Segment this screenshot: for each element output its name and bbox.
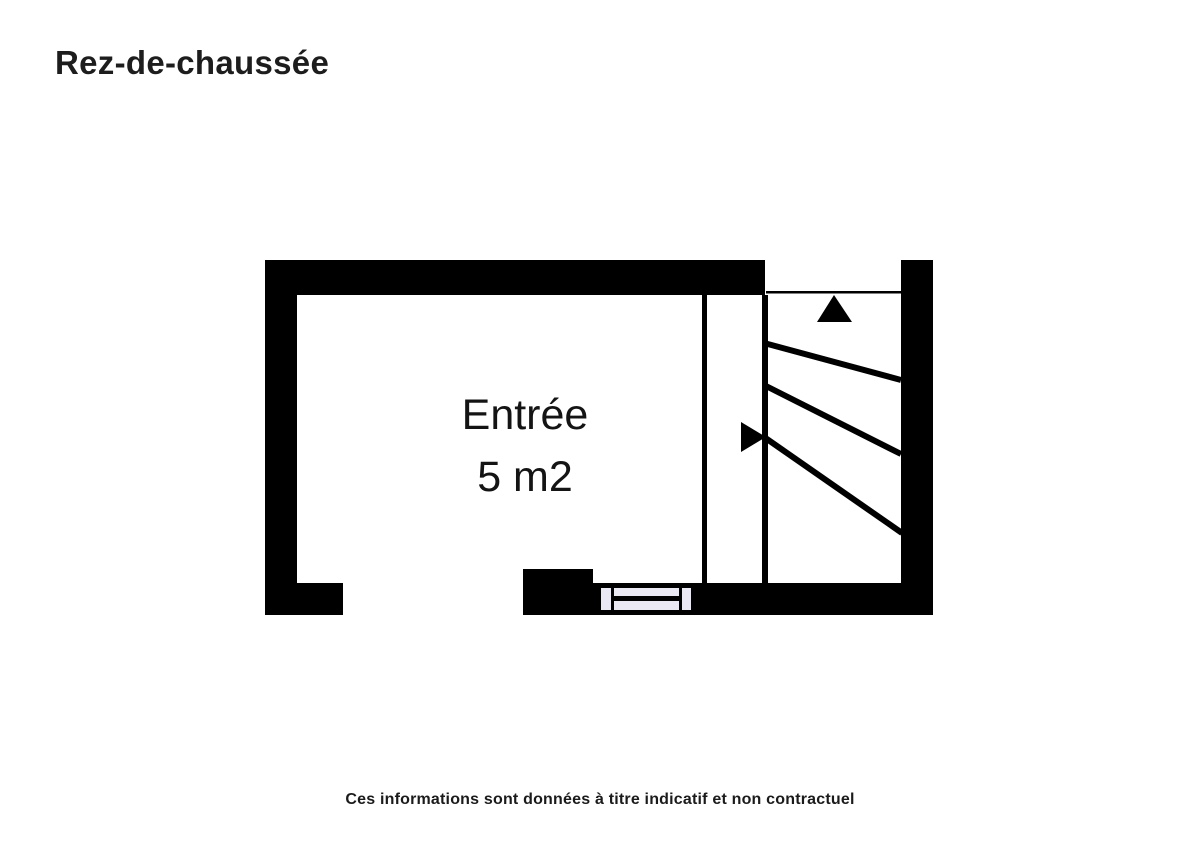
room-label: Entrée 5 m2 <box>355 384 695 508</box>
stair-treads <box>764 343 902 533</box>
bottom-left-wall <box>265 583 343 615</box>
stair-tread-line <box>764 343 901 380</box>
stair-landing-line <box>766 291 901 294</box>
room-area: 5 m2 <box>355 446 695 508</box>
disclaimer-text: Ces informations sont données à titre in… <box>0 791 1200 809</box>
stairs-up-arrow-icon <box>817 295 852 322</box>
window-mullion <box>614 596 679 601</box>
entry-step <box>523 569 593 585</box>
left-wall <box>265 260 297 615</box>
room-name: Entrée <box>355 384 695 446</box>
top-wall <box>265 260 765 295</box>
stair-tread-line <box>764 437 902 533</box>
right-wall <box>901 260 933 615</box>
bottom-wall <box>523 583 932 615</box>
floor-plan-page: Rez-de-chaussée <box>0 0 1200 849</box>
window-pane-right <box>682 588 691 610</box>
window-pane-left <box>601 588 611 610</box>
corridor-partition-left <box>702 295 707 584</box>
stair-tread-line <box>764 385 901 454</box>
window-symbol <box>598 584 692 613</box>
